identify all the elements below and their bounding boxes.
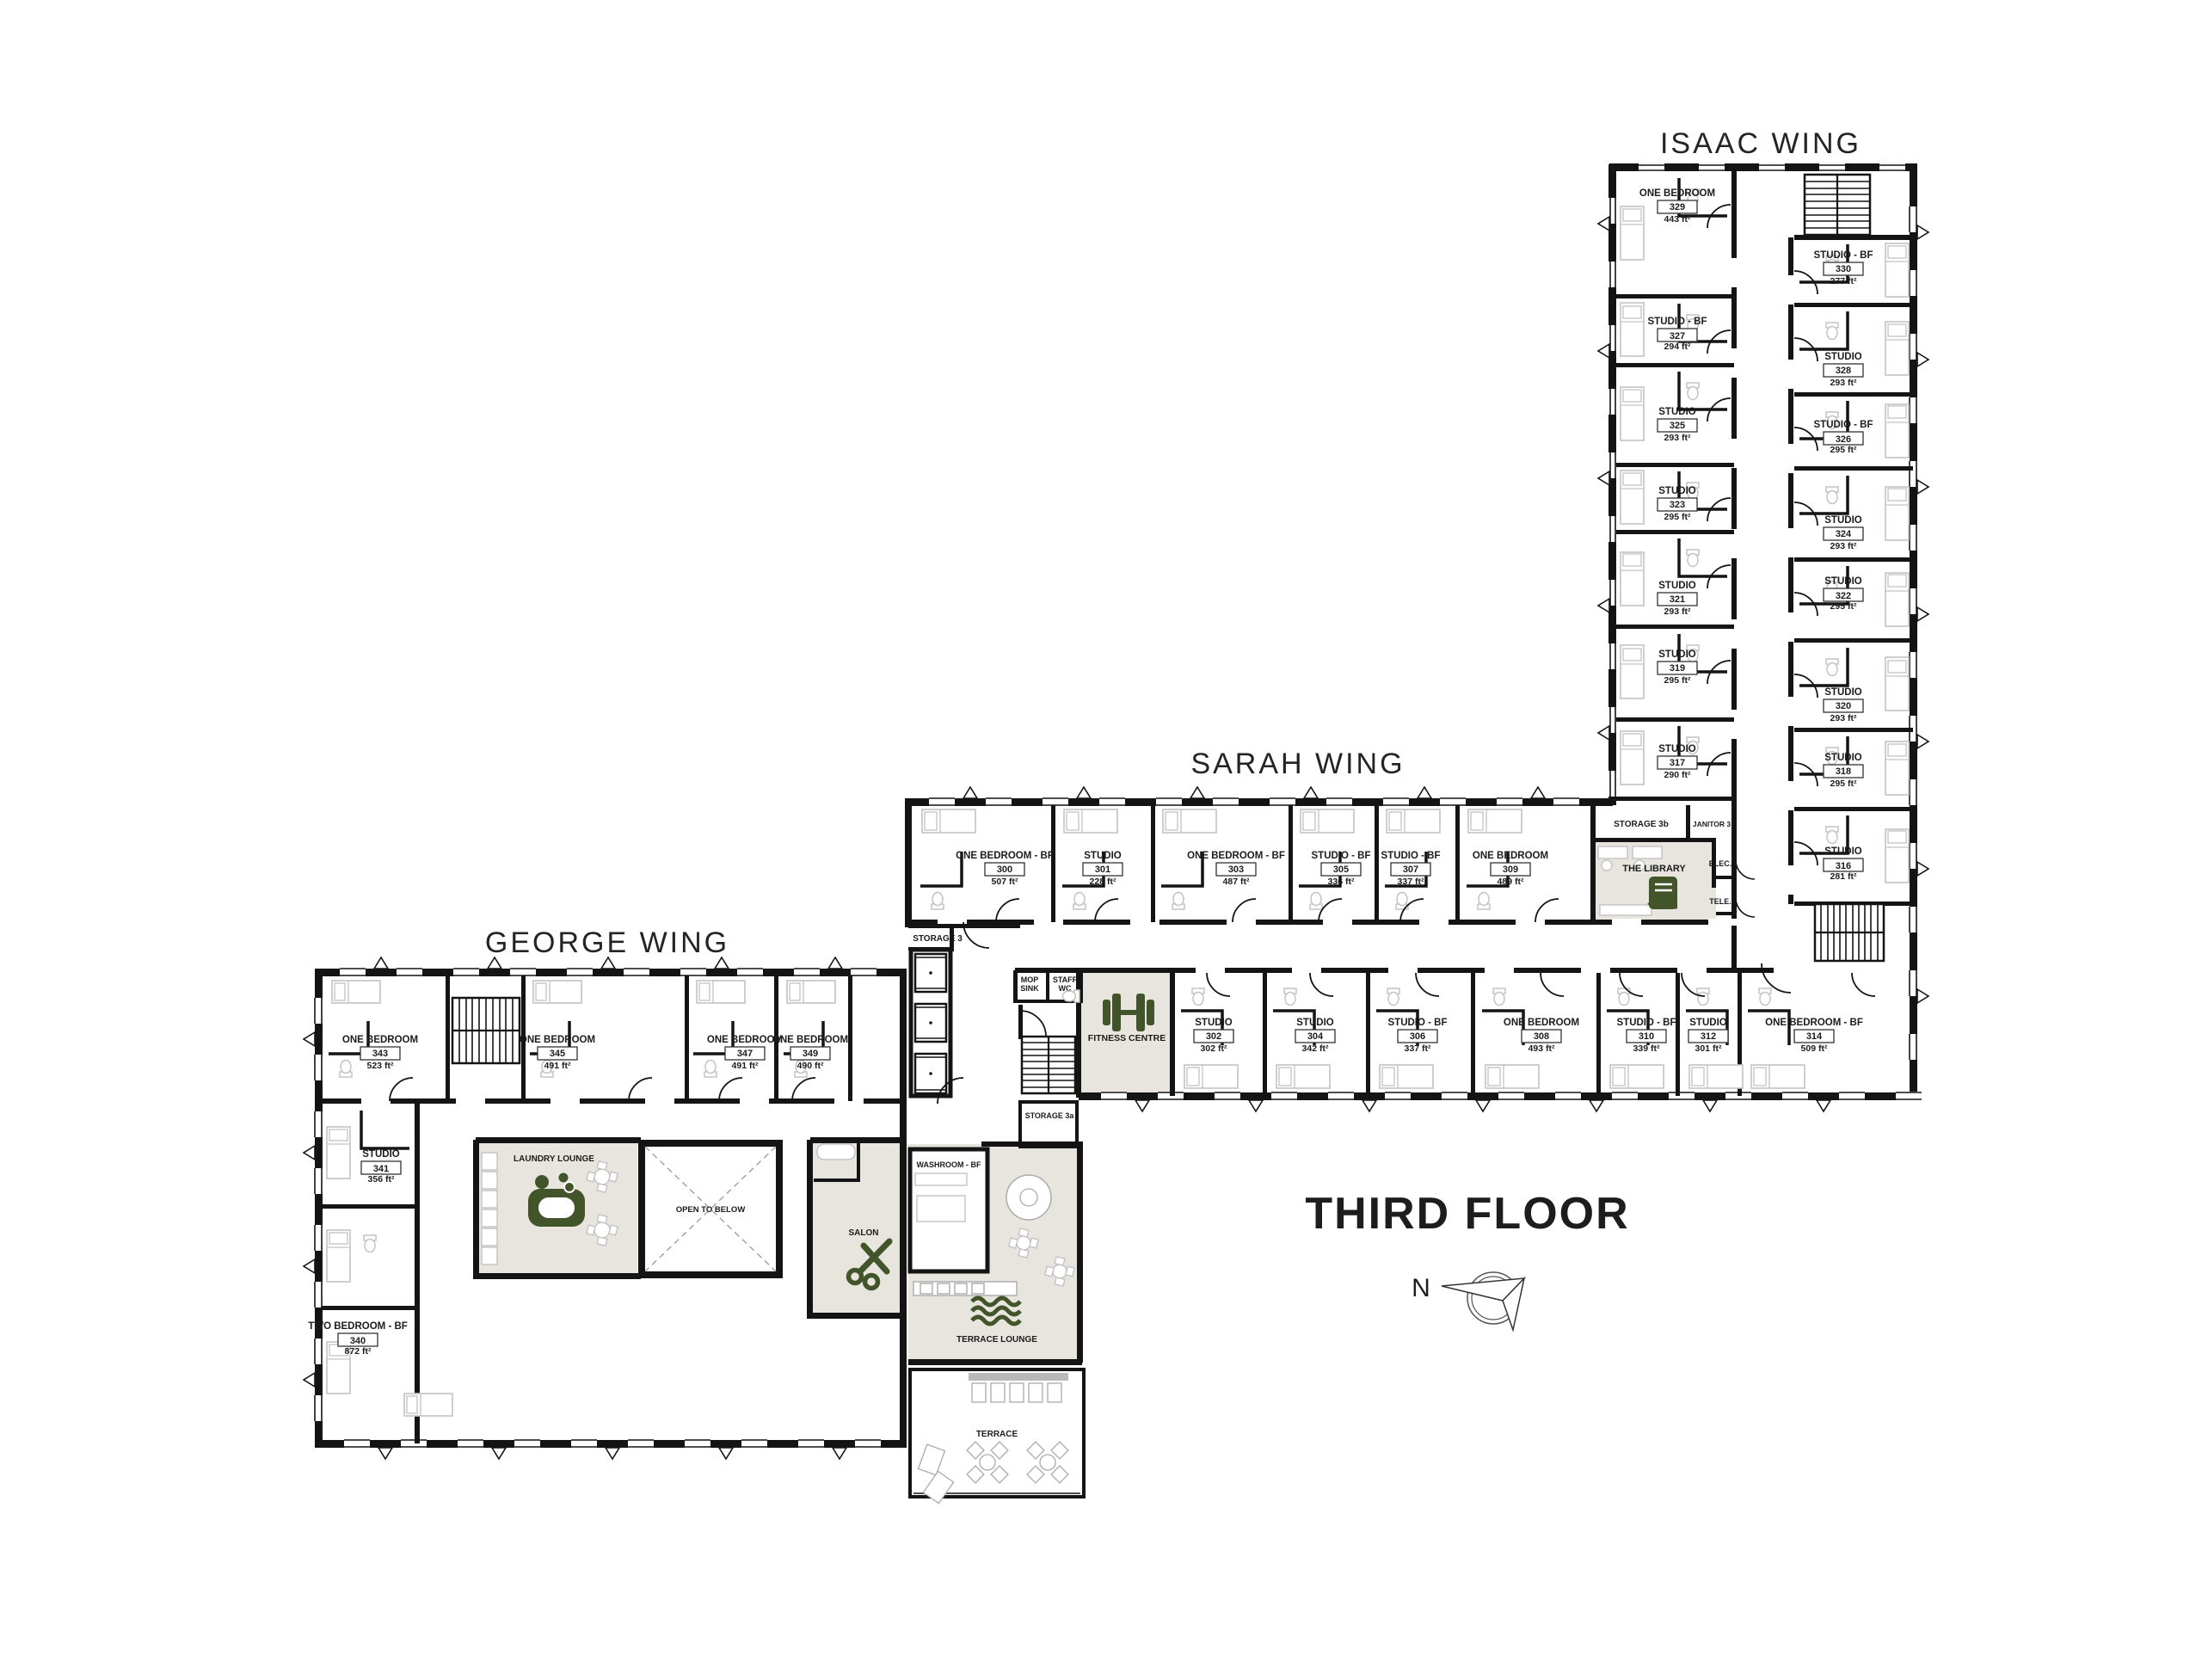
svg-text:STUDIO: STUDIO: [362, 1149, 400, 1160]
svg-text:295 ft²: 295 ft²: [1830, 778, 1857, 789]
svg-text:STUDIO: STUDIO: [1658, 407, 1696, 417]
svg-text:N: N: [1412, 1274, 1430, 1302]
svg-text:ONE BEDROOM - BF: ONE BEDROOM - BF: [1765, 1018, 1863, 1028]
svg-text:872 ft²: 872 ft²: [345, 1346, 372, 1357]
svg-text:STUDIO: STUDIO: [1824, 753, 1862, 763]
svg-text:305: 305: [1333, 865, 1349, 875]
svg-text:309: 309: [1503, 865, 1518, 875]
svg-text:491 ft²: 491 ft²: [732, 1061, 759, 1071]
svg-text:STUDIO - BF: STUDIO - BF: [1617, 1018, 1676, 1028]
svg-text:STORAGE 3b: STORAGE 3b: [1614, 820, 1669, 829]
svg-text:ISAAC WING: ISAAC WING: [1660, 127, 1861, 160]
svg-text:STUDIO: STUDIO: [1824, 846, 1862, 857]
svg-text:STAFF: STAFF: [1053, 975, 1078, 984]
svg-text:THIRD FLOOR: THIRD FLOOR: [1305, 1189, 1629, 1239]
svg-text:STUDIO: STUDIO: [1824, 576, 1862, 587]
svg-text:STUDIO - BF: STUDIO - BF: [1814, 250, 1873, 261]
svg-text:SARAH WING: SARAH WING: [1190, 748, 1405, 780]
svg-text:336 ft²: 336 ft²: [1328, 877, 1355, 887]
svg-text:330: 330: [1836, 264, 1851, 274]
svg-text:ELEC.: ELEC.: [1709, 859, 1732, 868]
svg-text:STUDIO: STUDIO: [1195, 1018, 1233, 1028]
svg-text:FITNESS CENTRE: FITNESS CENTRE: [1088, 1033, 1166, 1043]
svg-text:STUDIO: STUDIO: [1689, 1018, 1727, 1028]
svg-text:356 ft²: 356 ft²: [368, 1174, 395, 1185]
svg-text:STUDIO: STUDIO: [1824, 515, 1862, 526]
svg-text:293 ft²: 293 ft²: [1664, 606, 1691, 617]
svg-text:SINK: SINK: [1020, 984, 1039, 993]
svg-text:293 ft²: 293 ft²: [1830, 541, 1857, 551]
svg-text:281 ft²: 281 ft²: [1830, 871, 1857, 882]
svg-text:323: 323: [1670, 500, 1685, 510]
svg-text:507 ft²: 507 ft²: [992, 877, 1018, 887]
svg-text:295 ft²: 295 ft²: [1664, 675, 1691, 686]
svg-text:STUDIO: STUDIO: [1658, 486, 1696, 496]
svg-text:THE LIBRARY: THE LIBRARY: [1622, 864, 1686, 874]
svg-text:ONE BEDROOM: ONE BEDROOM: [520, 1035, 595, 1045]
svg-text:326: 326: [1836, 434, 1851, 445]
svg-text:STORAGE 3a: STORAGE 3a: [1025, 1111, 1075, 1120]
svg-text:ONE BEDROOM: ONE BEDROOM: [772, 1035, 848, 1045]
svg-text:304: 304: [1307, 1031, 1324, 1042]
svg-text:STUDIO: STUDIO: [1658, 649, 1696, 660]
svg-text:STUDIO: STUDIO: [1296, 1018, 1334, 1028]
svg-text:STUDIO: STUDIO: [1824, 687, 1862, 698]
svg-text:509 ft²: 509 ft²: [1801, 1043, 1828, 1054]
svg-text:GEORGE WING: GEORGE WING: [485, 926, 729, 959]
svg-text:ONE BEDROOM: ONE BEDROOM: [1473, 851, 1548, 861]
svg-text:347: 347: [737, 1049, 753, 1059]
svg-text:325: 325: [1670, 421, 1685, 431]
svg-text:SALON: SALON: [849, 1228, 879, 1238]
svg-text:294 ft²: 294 ft²: [1664, 342, 1691, 352]
svg-text:STUDIO: STUDIO: [1658, 744, 1696, 754]
svg-text:329: 329: [1670, 202, 1685, 212]
svg-text:443 ft²: 443 ft²: [1664, 214, 1691, 225]
svg-text:322: 322: [1836, 591, 1851, 601]
svg-text:339 ft²: 339 ft²: [1633, 1043, 1660, 1054]
svg-text:312: 312: [1701, 1031, 1716, 1042]
svg-text:LAUNDRY LOUNGE: LAUNDRY LOUNGE: [514, 1154, 594, 1164]
svg-text:308: 308: [1534, 1031, 1549, 1042]
svg-text:310: 310: [1639, 1031, 1654, 1042]
svg-text:337 ft²: 337 ft²: [1398, 877, 1424, 887]
svg-text:TERRACE LOUNGE: TERRACE LOUNGE: [956, 1335, 1037, 1345]
svg-text:228 ft²: 228 ft²: [1090, 877, 1116, 887]
svg-text:STUDIO: STUDIO: [1658, 581, 1696, 591]
svg-text:493 ft²: 493 ft²: [1528, 1043, 1555, 1054]
svg-text:301 ft²: 301 ft²: [1695, 1043, 1722, 1054]
svg-text:MOP: MOP: [1021, 975, 1039, 984]
svg-text:306: 306: [1410, 1031, 1425, 1042]
svg-text:293 ft²: 293 ft²: [1830, 378, 1857, 388]
svg-text:327: 327: [1670, 331, 1685, 342]
svg-text:319: 319: [1670, 663, 1685, 674]
svg-text:STUDIO - BF: STUDIO - BF: [1388, 1018, 1448, 1028]
svg-text:321: 321: [1670, 594, 1685, 605]
svg-text:ONE BEDROOM - BF: ONE BEDROOM - BF: [1187, 851, 1285, 861]
svg-text:491 ft²: 491 ft²: [544, 1061, 571, 1071]
svg-text:341: 341: [373, 1164, 389, 1174]
svg-text:324: 324: [1836, 529, 1852, 539]
svg-text:STUDIO - BF: STUDIO - BF: [1814, 420, 1873, 430]
svg-text:STUDIO - BF: STUDIO - BF: [1648, 317, 1707, 327]
svg-text:314: 314: [1806, 1031, 1823, 1042]
svg-text:TELE.: TELE.: [1709, 897, 1731, 906]
svg-text:320: 320: [1836, 701, 1851, 711]
svg-text:300: 300: [997, 865, 1012, 875]
svg-text:STUDIO: STUDIO: [1824, 352, 1862, 362]
svg-text:STUDIO - BF: STUDIO - BF: [1312, 851, 1371, 861]
svg-text:295 ft²: 295 ft²: [1830, 601, 1857, 612]
svg-text:TWO BEDROOM - BF: TWO BEDROOM - BF: [308, 1321, 408, 1332]
svg-text:302: 302: [1206, 1031, 1221, 1042]
svg-text:487 ft²: 487 ft²: [1223, 877, 1250, 887]
svg-text:ONE BEDROOM - BF: ONE BEDROOM - BF: [956, 851, 1054, 861]
svg-text:WASHROOM - BF: WASHROOM - BF: [917, 1160, 981, 1169]
svg-text:303: 303: [1228, 865, 1244, 875]
svg-text:295 ft²: 295 ft²: [1664, 512, 1691, 522]
svg-text:523 ft²: 523 ft²: [367, 1061, 394, 1071]
svg-text:ONE BEDROOM: ONE BEDROOM: [707, 1035, 783, 1045]
svg-text:342 ft²: 342 ft²: [1302, 1043, 1329, 1054]
svg-text:293 ft²: 293 ft²: [1830, 713, 1857, 723]
svg-text:STORAGE 3: STORAGE 3: [913, 934, 963, 944]
svg-text:TERRACE: TERRACE: [976, 1430, 1018, 1439]
svg-text:340: 340: [350, 1336, 366, 1346]
svg-text:277 ft²: 277 ft²: [1830, 276, 1857, 286]
svg-text:293 ft²: 293 ft²: [1664, 433, 1691, 443]
svg-text:490 ft²: 490 ft²: [797, 1061, 824, 1071]
svg-text:301: 301: [1095, 865, 1110, 875]
svg-text:ONE BEDROOM: ONE BEDROOM: [1639, 188, 1715, 199]
svg-text:295 ft²: 295 ft²: [1830, 445, 1857, 455]
svg-text:290 ft²: 290 ft²: [1664, 770, 1691, 780]
svg-text:307: 307: [1403, 865, 1418, 875]
svg-text:302 ft²: 302 ft²: [1201, 1043, 1227, 1054]
svg-text:318: 318: [1836, 766, 1851, 777]
svg-text:ONE BEDROOM: ONE BEDROOM: [342, 1035, 418, 1045]
svg-text:JANITOR 3: JANITOR 3: [1693, 820, 1731, 828]
svg-text:349: 349: [803, 1049, 818, 1059]
svg-text:328: 328: [1836, 366, 1851, 376]
svg-text:316: 316: [1836, 861, 1851, 871]
svg-text:STUDIO: STUDIO: [1084, 851, 1122, 861]
svg-text:OPEN TO BELOW: OPEN TO BELOW: [676, 1205, 746, 1215]
svg-text:345: 345: [550, 1049, 565, 1059]
svg-text:STUDIO - BF: STUDIO - BF: [1381, 851, 1441, 861]
svg-text:317: 317: [1670, 758, 1685, 768]
svg-text:343: 343: [372, 1049, 388, 1059]
svg-text:489 ft²: 489 ft²: [1498, 877, 1524, 887]
svg-text:337 ft²: 337 ft²: [1405, 1043, 1431, 1054]
svg-text:ONE BEDROOM: ONE BEDROOM: [1504, 1018, 1579, 1028]
